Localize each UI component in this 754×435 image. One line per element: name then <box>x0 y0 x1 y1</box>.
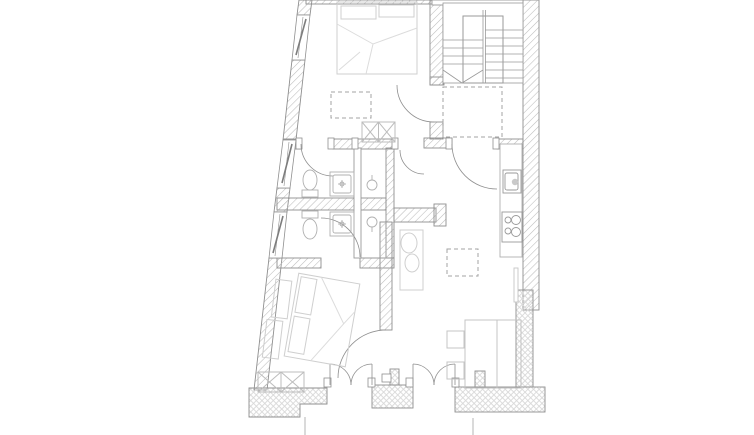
duvet-folds <box>337 24 417 74</box>
toilet-upper <box>302 170 318 197</box>
bed-upper <box>337 2 417 74</box>
wall-left-bottom <box>254 258 282 390</box>
walls-heavy <box>249 290 545 417</box>
wall-ell-horizontal <box>394 208 436 222</box>
wall-stair-left-lower <box>430 122 443 139</box>
door-shaft <box>400 150 424 174</box>
wall-stair-left <box>430 0 443 85</box>
floor-plan-page <box>0 0 754 435</box>
kitchen <box>500 144 522 302</box>
radiator <box>514 268 518 302</box>
floor-plan-canvas <box>0 0 754 435</box>
staircase <box>443 3 523 83</box>
shower-tray-lower <box>330 212 354 236</box>
french-door-right <box>413 364 455 385</box>
chair <box>447 331 464 348</box>
shaft-drain-upper <box>367 175 377 190</box>
wall-stair-bottom-stub <box>430 77 444 85</box>
wall-bath-bottom-1 <box>277 258 321 268</box>
wall-ell-cap <box>434 204 446 226</box>
dining-table <box>465 320 521 388</box>
cabinet-plant <box>400 230 423 290</box>
wall-band-2 <box>333 139 397 149</box>
wall-bottom-center-pier <box>372 385 413 408</box>
door-bedroom-upper <box>397 85 434 122</box>
wall-left-mid1 <box>283 60 305 140</box>
void-living <box>447 249 478 276</box>
shower-tray-upper <box>330 172 354 196</box>
kitchen-counter <box>500 144 522 257</box>
void-hall <box>443 87 502 137</box>
wall-bottom-right-notch <box>475 371 485 387</box>
pillow <box>379 5 414 17</box>
wall-bathroom-divider <box>277 198 386 210</box>
pillow <box>295 277 317 315</box>
pillow <box>288 316 310 354</box>
window-1 <box>292 15 310 60</box>
wall-bedroom-living <box>380 222 392 330</box>
bed-lower <box>284 273 360 366</box>
door-kitchen-living <box>452 144 497 189</box>
void-bedroom-upper <box>331 92 371 118</box>
french-door-left <box>330 364 372 385</box>
window-3 <box>269 212 287 258</box>
wall-right-lower <box>516 290 533 387</box>
shaft-drain-lower <box>367 217 377 232</box>
wall-right-upper <box>523 0 539 310</box>
toilet-lower <box>302 211 318 239</box>
wall-bottom-right-band <box>455 387 545 412</box>
window-2 <box>277 140 296 188</box>
wall-shaft-left <box>354 148 361 258</box>
pillow <box>341 6 376 19</box>
reference-lines <box>305 417 473 435</box>
